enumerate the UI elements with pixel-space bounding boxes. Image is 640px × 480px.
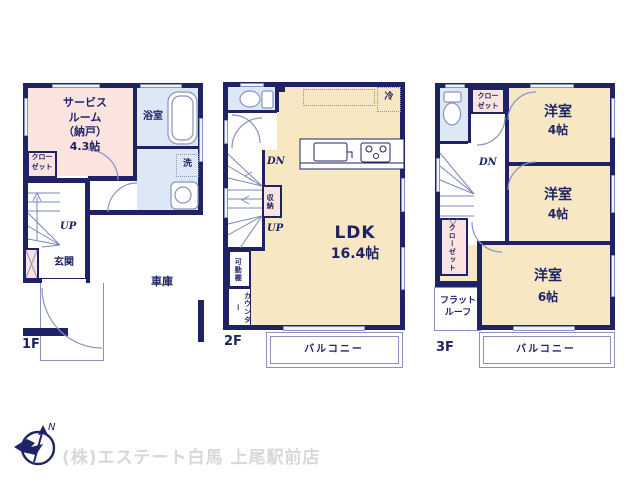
wall-segment (435, 281, 482, 287)
window (611, 255, 615, 297)
floorplan-canvas: サービス ルーム （納戸） 4.3帖 クロー ゼット 浴室 洗 UP 玄関 車庫… (0, 0, 640, 480)
f2-toilet-room (228, 87, 275, 112)
window (24, 98, 28, 136)
wall-segment (198, 300, 204, 342)
wall-segment (277, 84, 285, 92)
f2-hall (228, 112, 277, 150)
f2-balcony-label: バルコニー (293, 343, 375, 356)
window (52, 84, 100, 88)
wall-segment (88, 176, 137, 181)
window (611, 175, 615, 213)
window (530, 84, 574, 88)
f3-room3-name: 洋室 (518, 267, 578, 285)
window (224, 188, 228, 218)
f3-floor-tag: 3F (436, 340, 454, 355)
wall-segment (137, 146, 198, 149)
f2-ldk-size: 16.4帖 (315, 245, 395, 263)
f3-room2-size: 4帖 (528, 207, 588, 223)
f1-closet-label: クロー ゼット (28, 153, 56, 173)
f1-floor-tag: 1F (22, 337, 40, 352)
window (224, 120, 228, 144)
f3-toilet-room (440, 88, 468, 143)
f3-balcony-label: バルコニー (505, 343, 587, 356)
wall-segment (505, 88, 509, 245)
wall-segment (23, 328, 68, 336)
f3-room1-name: 洋室 (528, 103, 588, 121)
wall-segment (468, 88, 471, 143)
wall-segment (440, 141, 468, 144)
f3-room1-size: 4帖 (528, 123, 588, 139)
f2-fridge-label: 冷 (377, 92, 401, 104)
window (140, 84, 182, 88)
f2-storage-label: 収納 (265, 189, 274, 215)
f3-dn-label: DN (479, 157, 497, 168)
f1-genkan-label: 玄関 (44, 256, 84, 269)
window (611, 98, 615, 138)
f2-cupboard-space (303, 89, 375, 106)
f1-up-label: UP (60, 221, 76, 232)
wall-segment (228, 247, 265, 251)
f1-shoe-closet-box (24, 248, 39, 280)
window (401, 247, 405, 290)
door-opening (42, 279, 86, 283)
f3-flat-roof-label: フラット ルーフ (438, 296, 478, 320)
balcony-door (513, 326, 575, 331)
wall-segment (228, 110, 277, 113)
wall-segment (509, 162, 611, 166)
f1-garage-label: 車庫 (142, 275, 182, 290)
f3-room3-size: 6帖 (518, 290, 578, 306)
f2-dn-label: DN (267, 156, 285, 167)
company-name: (株)エステート白馬 上尾駅前店 (62, 443, 320, 468)
f3-closet-left-label: クローゼット (447, 223, 456, 273)
f2-floor-tag: 2F (224, 334, 242, 349)
f1-service-room-label: サービス ルーム （納戸） 4.3帖 (40, 96, 130, 154)
wall-segment (133, 87, 137, 177)
window (436, 158, 440, 192)
f2-ldk-name: LDK (320, 222, 390, 244)
window (240, 83, 264, 87)
f3-room2-name: 洋室 (528, 186, 588, 204)
wall-segment (477, 241, 610, 245)
f1-wash-label: 洗 (176, 159, 199, 171)
compass-icon: N (12, 418, 64, 474)
f1-porch (40, 283, 104, 361)
compass-north-label: N (48, 422, 56, 433)
f1-bath-label: 浴室 (139, 110, 167, 123)
balcony-door (283, 326, 365, 331)
f2-up-label: UP (267, 223, 283, 234)
f2-counter-label: カウンター (233, 291, 251, 325)
window (401, 178, 405, 212)
window (199, 118, 203, 162)
f2-shelf-label: 可動棚 (233, 254, 242, 286)
f3-closet-top-label: クロー ゼット (472, 92, 504, 112)
window (445, 84, 465, 88)
